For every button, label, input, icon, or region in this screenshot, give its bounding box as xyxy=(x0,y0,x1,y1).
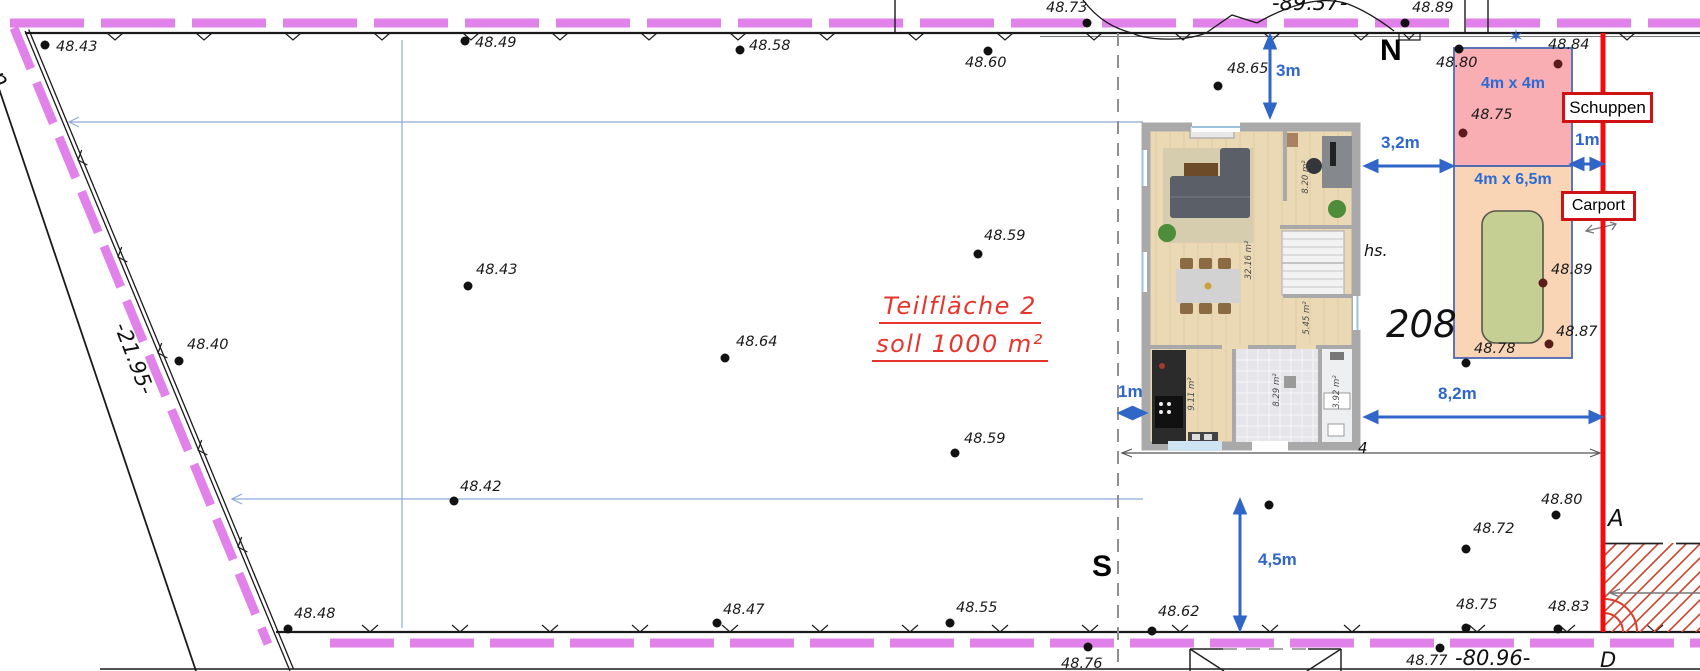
elevation-dot xyxy=(974,250,983,259)
schuppen-sign: Schuppen xyxy=(1562,92,1653,123)
schuppen-size-label: 4m x 4m xyxy=(1454,76,1572,92)
house-floorplan xyxy=(1137,122,1363,451)
dimension-label: 8,2m xyxy=(1438,385,1477,402)
elevation-label: 48.80 xyxy=(1541,493,1583,508)
elevation-label: 48.72 xyxy=(1473,522,1515,537)
area-note-line1: Teilfläche 2 xyxy=(879,292,1041,324)
carport-sign: Carport xyxy=(1561,191,1636,221)
elevation-label: 48.43 xyxy=(476,263,518,278)
dimension-label: 1m xyxy=(1118,383,1143,400)
elevation-label: 48.84 xyxy=(1548,38,1590,53)
south-label: S xyxy=(1092,552,1112,582)
elevation-dot xyxy=(1401,19,1410,28)
elevation-dot xyxy=(461,37,470,46)
elevation-dot xyxy=(1462,545,1471,554)
dimension-label: 3m xyxy=(1276,62,1301,79)
elevation-label: 48.47 xyxy=(723,603,765,618)
plant xyxy=(1328,200,1346,218)
elevation-label: 48.48 xyxy=(294,607,336,622)
elevation-label: 48.43 xyxy=(56,40,98,55)
car-shape xyxy=(1482,211,1543,343)
elevation-label: 48.89 xyxy=(1412,1,1454,16)
elevation-dot xyxy=(450,497,459,506)
elevation-label: 48.77 xyxy=(1406,654,1448,669)
room-area-label: 9.11 m² xyxy=(1187,377,1197,410)
elevation-dot xyxy=(1462,624,1471,633)
schuppen-sign-label: Schuppen xyxy=(1569,98,1646,118)
elevation-label: 48.83 xyxy=(1548,600,1590,615)
elevation-dot xyxy=(1539,279,1548,288)
carport-sign-label: Carport xyxy=(1572,197,1625,215)
elevation-label: 48.78 xyxy=(1474,342,1516,357)
room-area-label: 8.20 m² xyxy=(1301,160,1311,193)
star-icon: ✶ xyxy=(1508,28,1524,47)
elevation-dot xyxy=(1552,511,1561,520)
driveway-symbol xyxy=(1190,649,1341,671)
elevation-label: 48.75 xyxy=(1456,598,1498,613)
elevation-dot xyxy=(175,357,184,366)
elevation-dot xyxy=(1554,625,1563,634)
elevation-dot xyxy=(721,354,730,363)
room-area-label: 8.29 m² xyxy=(1272,373,1282,406)
elevation-dot xyxy=(1455,45,1464,54)
elevation-label: 48.42 xyxy=(460,480,502,495)
elevation-dot xyxy=(1436,644,1445,653)
elevation-dot xyxy=(464,282,473,291)
grey-arrow-in-hatch xyxy=(1610,589,1700,597)
elevation-label: 48.73 xyxy=(1046,1,1088,16)
elevation-label: 48.60 xyxy=(965,56,1007,71)
parcel-number: 208 xyxy=(1386,306,1457,343)
elevation-label: 48.80 xyxy=(1436,56,1478,71)
sofa-chaise xyxy=(1220,148,1250,218)
elevation-dot xyxy=(1083,19,1092,28)
elevation-label: 48.58 xyxy=(749,39,791,54)
elevation-dot xyxy=(1462,359,1471,368)
elevation-dot xyxy=(1554,60,1563,69)
dimension-label: 3,2m xyxy=(1381,134,1420,151)
plant xyxy=(1158,224,1176,242)
room-area-label: 5.45 m² xyxy=(1302,301,1312,334)
elevation-dot xyxy=(1148,627,1157,636)
elevation-dot xyxy=(1545,340,1554,349)
north-label: N xyxy=(1380,36,1402,66)
room-area-label: 32.16 m² xyxy=(1244,241,1254,280)
desk xyxy=(1322,136,1352,188)
elevation-label: 48.76 xyxy=(1061,657,1103,671)
dim-four-label: 4 xyxy=(1358,441,1368,456)
marker-a: A xyxy=(1608,508,1624,531)
elevation-label: 48.64 xyxy=(736,335,778,350)
elevation-dot xyxy=(951,449,960,458)
dimension-label: 4,5m xyxy=(1258,551,1297,568)
elevation-dot xyxy=(736,46,745,55)
hatched-area xyxy=(1520,536,1700,640)
boundary-length-top: -89.37- xyxy=(1272,0,1347,14)
elevation-dot xyxy=(1084,643,1093,652)
elevation-label: 48.75 xyxy=(1471,108,1513,123)
elevation-dot xyxy=(1459,129,1468,138)
room-area-label: 3.92 m² xyxy=(1332,375,1342,408)
elevation-dot xyxy=(1265,501,1274,510)
elevation-label: 48.87 xyxy=(1556,325,1598,340)
elevation-label: 48.59 xyxy=(984,229,1026,244)
elevation-label: 48.62 xyxy=(1158,605,1200,620)
marker-d: D xyxy=(1600,650,1616,671)
boundary-length-bottom: -80.96- xyxy=(1455,648,1530,669)
elevation-dot xyxy=(284,625,293,634)
elevation-dot xyxy=(946,619,955,628)
site-plan: graben -21.95- -89.37- -80.96- N S Teilf… xyxy=(0,0,1700,671)
area-note-line2: soll 1000 m² xyxy=(872,330,1048,362)
staircase xyxy=(1282,231,1344,295)
elevation-label: 48.49 xyxy=(475,36,517,51)
house-abbrev: hs. xyxy=(1364,243,1388,259)
elevation-label: 48.55 xyxy=(956,601,998,616)
elevation-label: 48.89 xyxy=(1551,263,1593,278)
elevation-dot xyxy=(713,619,722,628)
elevation-label: 48.59 xyxy=(964,432,1006,447)
elevation-label: 48.65 xyxy=(1227,62,1269,77)
dimension-label: 1m xyxy=(1575,131,1600,148)
area-note: Teilfläche 2 soll 1000 m² xyxy=(830,292,1090,368)
carport-size-label: 4m x 6,5m xyxy=(1454,172,1572,188)
elevation-label: 48.40 xyxy=(187,338,229,353)
elevation-dot xyxy=(41,41,50,50)
elevation-dot xyxy=(1214,82,1223,91)
